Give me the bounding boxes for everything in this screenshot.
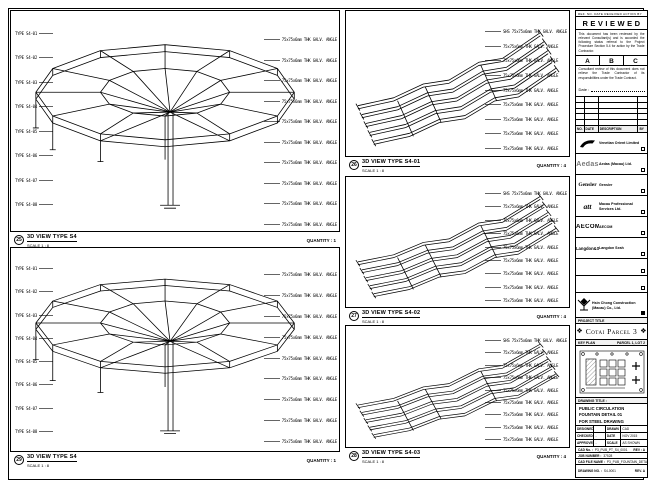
revision-header-cell: BY: [638, 126, 647, 132]
leader-line: [264, 399, 280, 400]
approvals-value: CAD: [621, 426, 647, 432]
annotation-label: 75x75x6mm THK GALV. ANGLE: [264, 397, 337, 402]
contractor-row: Hsin Chong Construction (Macau) Co., Ltd…: [576, 293, 647, 318]
quantity-note: QUANTITY : 4: [537, 314, 566, 319]
annotation-label: 75x75x6mm THK GALV. ANGLE: [264, 181, 337, 186]
leader-line: [485, 300, 501, 301]
contractor-name: Hsin Chong Construction (Macau) Co., Ltd…: [592, 301, 636, 310]
date-fill-line: [591, 88, 644, 92]
consultant-name: Macau Professional Services Ltd.: [599, 202, 633, 211]
leader-line: [264, 358, 280, 359]
att-logo: att: [576, 202, 599, 211]
annotation-label: 75x75x6mm THK GALV. ANGLE: [485, 298, 567, 303]
leader-line: [485, 207, 501, 208]
annotation-label: 75x75x6mm THK GALV. ANGLE: [485, 204, 567, 209]
aecom-logo: AECOM: [576, 224, 599, 230]
leader-line: [264, 337, 280, 338]
annotation-label: 75x75x6mm THK GALV. ANGLE: [485, 218, 567, 223]
leader-line: [39, 361, 53, 362]
annotation-label: 75x75x6mm THK GALV. ANGLE: [485, 412, 567, 417]
quantity-note: QUANTITY : 4: [537, 454, 566, 459]
consultant-row-macau-professional: att Macau Professional Services Ltd.: [576, 196, 647, 217]
annotation-label: 75x75x6mm THK GALV. ANGLE: [264, 314, 337, 319]
callout-number: 29: [16, 457, 22, 463]
annotation-label: 75x75x6mm THK GALV. ANGLE: [264, 272, 337, 277]
annotation-label: 75x75x6mm THK GALV. ANGLE: [485, 375, 567, 380]
annotation-label: 75x75x6mm THK GALV. ANGLE: [485, 44, 567, 49]
annotation-label: 75x75x6mm THK GALV. ANGLE: [485, 73, 567, 78]
viewport-3d-view-type-s4-b: TYPE S4-01TYPE S4-02TYPE S4-03TYPE S4-04…: [10, 247, 340, 452]
approvals-value: AS SHOWN: [621, 440, 647, 446]
leader-line: [39, 204, 53, 205]
leader-line: [485, 402, 501, 403]
revision-header-cell: DESCRIPTION: [599, 126, 639, 132]
drawing-number-row: DRAWING NO. : S4-0001 REV. A: [576, 465, 647, 477]
checkbox-icon: [641, 231, 645, 235]
review-grade: C: [624, 56, 647, 65]
leader-line: [264, 316, 280, 317]
leader-line: [264, 295, 280, 296]
consultant-row-gensler: Gensler Gensler: [576, 175, 647, 196]
annotation-label: TYPE S4-02: [15, 289, 53, 294]
leader-line: [264, 60, 280, 61]
annotation-label: 75x75x6mm THK GALV. ANGLE: [264, 140, 337, 145]
checkbox-icon: [641, 252, 645, 256]
annotation-label: TYPE S4-05: [15, 359, 53, 364]
annotation-label: 75x75x6mm THK GALV. ANGLE: [485, 131, 567, 136]
annotation-label: TYPE S4-06: [15, 382, 53, 387]
annotation-label: 75x75x6mm THK GALV. ANGLE: [485, 102, 567, 107]
quantity-note: QUANTITY : 1: [307, 238, 336, 243]
annotation-label: TYPE S4-08: [15, 429, 53, 434]
leader-line: [264, 379, 280, 380]
leader-line: [264, 162, 280, 163]
leader-line: [485, 260, 501, 261]
consultant-name: Langdon Seah: [599, 246, 624, 250]
leader-line: [485, 104, 501, 105]
annotation-label: 75x75x6mm THK GALV. ANGLE: [264, 37, 337, 42]
annotation-label: TYPE S4-06: [15, 153, 53, 158]
leader-line: [39, 180, 53, 181]
revision-table-header: NO.DATEDESCRIPTIONBY: [576, 126, 647, 132]
annotation-label: TYPE S4-07: [15, 178, 53, 183]
leader-line: [485, 90, 501, 91]
viewport-3d-view-type-s4: TYPE S4-01TYPE S4-02TYPE S4-03TYPE S4-04…: [10, 10, 340, 232]
annotation-label: 75x75x6mm THK GALV. ANGLE: [264, 335, 337, 340]
annotation-label: 75x75x6mm THK GALV. ANGLE: [485, 271, 567, 276]
annotation-label: TYPE S4-08: [15, 202, 53, 207]
callout-number: 28: [351, 453, 357, 459]
drawing-title-line: FOR STEEL DRAWING: [579, 419, 644, 425]
annotation-label: 75x75x6mm THK GALV. ANGLE: [264, 78, 337, 83]
annotation-label: 75x75x6mm THK GALV. ANGLE: [485, 425, 567, 430]
project-emblem-icon: ❖: [576, 328, 582, 335]
annotation-label: SHS 75x75x6mm THK GALV. ANGLE: [485, 191, 567, 196]
annotation-label: 75x75x6mm THK GALV. ANGLE: [485, 245, 567, 250]
approvals-row: DESIGNED DRAWN CAD: [576, 426, 647, 433]
annotation-label: 75x75x6mm THK GALV. ANGLE: [264, 58, 337, 63]
langdon-seah-logo: Langdon&Seah: [576, 246, 599, 251]
review-grade: B: [600, 56, 624, 65]
leader-line: [39, 385, 53, 386]
title-block: REF. NO. DATE RECEIVED ACTION BY REVIEWE…: [575, 10, 648, 478]
annotation-label: 75x75x6mm THK GALV. ANGLE: [264, 222, 337, 227]
detail-callout-circle: 28: [349, 451, 359, 461]
callout-number: 27: [351, 313, 357, 319]
annotation-label: 75x75x6mm THK GALV. ANGLE: [485, 363, 567, 368]
detail-callout-circle: 27: [349, 311, 359, 321]
review-stamp-text-2: Consultant review of this document does …: [576, 66, 647, 82]
annotation-label: 75x75x6mm THK GALV. ANGLE: [485, 285, 567, 290]
review-stamp: REVIEWED This document has been reviewed…: [576, 17, 647, 97]
annotation-column-right: SHS 75x75x6mm THK GALV. ANGLE75x75x6mm T…: [485, 338, 567, 442]
view-scale: SCALE 1 : 8: [362, 168, 420, 173]
leader-line: [485, 31, 501, 32]
annotation-column-left: TYPE S4-01TYPE S4-02TYPE S4-03TYPE S4-04…: [15, 266, 53, 434]
checkbox-icon: [641, 147, 645, 151]
annotation-label: TYPE S4-03: [15, 313, 53, 318]
leader-line: [264, 441, 280, 442]
viewport-3d-view-type-s4-03: SHS 75x75x6mm THK GALV. ANGLE75x75x6mm T…: [345, 325, 570, 448]
leader-line: [485, 119, 501, 120]
leader-line: [485, 220, 501, 221]
annotation-label: 75x75x6mm THK GALV. ANGLE: [485, 437, 567, 442]
review-grade-row: ABC: [576, 55, 647, 66]
leader-line: [39, 58, 53, 59]
checkbox-icon: [641, 286, 645, 290]
drawing-title-text: PUBLIC CIRCULATION FOUNTAIN DETAIL 01 FO…: [576, 404, 647, 426]
leader-line: [264, 204, 280, 205]
review-stamp-title: REVIEWED: [576, 17, 647, 30]
annotation-label: 75x75x6mm THK GALV. ANGLE: [485, 258, 567, 263]
band-label: DRAWING TITLE :: [578, 399, 607, 403]
leader-line: [264, 121, 280, 122]
view-title: 3D VIEW TYPE S4-02: [362, 310, 420, 318]
view-title: 3D VIEW TYPE S4-03: [362, 450, 420, 458]
viewport-title-bar: 25 3D VIEW TYPE S4 SCALE 1 : 8 QUANTITY …: [10, 233, 340, 247]
leader-line: [485, 353, 501, 354]
annotation-label: 75x75x6mm THK GALV. ANGLE: [485, 117, 567, 122]
annotation-label: TYPE S4-01: [15, 266, 53, 271]
leader-line: [485, 247, 501, 248]
checkbox-icon: [641, 189, 645, 193]
project-name: Cotai Parcel 3: [586, 327, 638, 336]
annotation-label: 75x75x6mm THK GALV. ANGLE: [485, 58, 567, 63]
approvals-label: CHECKED: [576, 433, 594, 439]
annotation-label: 75x75x6mm THK GALV. ANGLE: [264, 201, 337, 206]
leader-line: [264, 183, 280, 184]
viewport-3d-view-type-s4-02: SHS 75x75x6mm THK GALV. ANGLE75x75x6mm T…: [345, 176, 570, 308]
leader-line: [485, 75, 501, 76]
revision-letter: REV : A: [633, 448, 645, 452]
project-emblem-icon: ❖: [640, 328, 646, 335]
annotation-label: SHS 75x75x6mm THK GALV. ANGLE: [485, 29, 567, 34]
leader-line: [485, 273, 501, 274]
viewport-title-bar: 29 3D VIEW TYPE S4 SCALE 1 : 8 QUANTITY …: [10, 453, 340, 467]
gensler-logo: Gensler: [576, 182, 599, 188]
aedas-logo: Aedas: [576, 161, 599, 168]
consultant-row-aedas: Aedas Aedas (Macau) Ltd.: [576, 154, 647, 175]
leader-line: [485, 46, 501, 47]
approvals-label: DRAWN: [606, 426, 622, 432]
date-label: Date :: [579, 87, 590, 92]
leader-line: [39, 33, 53, 34]
annotation-label: TYPE S4-07: [15, 406, 53, 411]
leader-line: [264, 80, 280, 81]
annotation-label: 75x75x6mm THK GALV. ANGLE: [485, 146, 567, 151]
review-grade: A: [576, 56, 600, 65]
consultant-name: AECOM: [599, 225, 612, 229]
annotation-column-right: SHS 75x75x6mm THK GALV. ANGLE75x75x6mm T…: [485, 191, 567, 303]
annotation-label: TYPE S4-02: [15, 55, 53, 60]
consultant-name: Venetian Orient Limited: [599, 141, 639, 145]
leader-line: [485, 148, 501, 149]
review-stamp-text-1: This document has been reviewed by the r…: [576, 30, 647, 55]
leader-line: [39, 131, 53, 132]
project-name-row: ❖ Cotai Parcel 3 ❖: [576, 324, 647, 340]
leader-line: [264, 39, 280, 40]
leader-line: [39, 315, 53, 316]
annotation-label: TYPE S4-05: [15, 129, 53, 134]
view-scale: SCALE 1 : 8: [362, 459, 420, 464]
viewport-title-bar: 27 3D VIEW TYPE S4-02 SCALE 1 : 8 QUANTI…: [345, 309, 570, 323]
annotation-column-right: 75x75x6mm THK GALV. ANGLE75x75x6mm THK G…: [264, 37, 337, 227]
annotation-label: 75x75x6mm THK GALV. ANGLE: [264, 119, 337, 124]
hsin-chong-logo-icon: [576, 297, 592, 313]
annotation-label: TYPE S4-04: [15, 104, 53, 109]
approvals-row: APPROVED - SCALE AS SHOWN: [576, 440, 647, 446]
approvals-row: CHECKED - DATE NOV 2015: [576, 433, 647, 440]
checkbox-icon: [641, 210, 645, 214]
leader-line: [485, 340, 501, 341]
leader-line: [485, 414, 501, 415]
view-scale: SCALE 1 : 8: [27, 463, 77, 468]
leader-line: [485, 427, 501, 428]
consultant-name: Gensler: [599, 183, 612, 187]
annotation-label: TYPE S4-01: [15, 31, 53, 36]
consultant-row-venetian: Venetian Orient Limited: [576, 133, 647, 154]
approvals-label: DATE: [606, 433, 622, 439]
checkbox-icon: [641, 269, 645, 273]
leader-line: [485, 60, 501, 61]
quantity-note: QUANTITY : 4: [537, 163, 566, 168]
annotation-label: 75x75x6mm THK GALV. ANGLE: [485, 88, 567, 93]
band-label: PROJECT TITLE: [578, 319, 604, 323]
leader-line: [39, 338, 53, 339]
leader-line: [39, 155, 53, 156]
revision-header-cell: DATE: [585, 126, 599, 132]
annotation-label: 75x75x6mm THK GALV. ANGLE: [264, 293, 337, 298]
key-plan-drawing: [576, 346, 647, 398]
leader-line: [485, 439, 501, 440]
approvals-value: NOV 2015: [621, 433, 647, 439]
leader-line: [264, 420, 280, 421]
revision-letter: REV. A: [635, 469, 645, 473]
key-plan-parcel-label: PARCEL 1, LOT 2: [617, 341, 645, 345]
revision-table: NO.DATEDESCRIPTIONBY: [576, 97, 647, 133]
leader-line: [39, 268, 53, 269]
view-title: 3D VIEW TYPE S4: [27, 234, 77, 242]
annotation-label: TYPE S4-03: [15, 80, 53, 85]
detail-callout-circle: 25: [14, 235, 24, 245]
quantity-note: QUANTITY : 1: [307, 458, 336, 463]
leader-line: [485, 377, 501, 378]
leader-line: [39, 431, 53, 432]
review-date-row: Date :: [576, 82, 647, 94]
leader-line: [485, 365, 501, 366]
leader-line: [264, 101, 280, 102]
annotation-label: 75x75x6mm THK GALV. ANGLE: [264, 356, 337, 361]
annotation-label: 75x75x6mm THK GALV. ANGLE: [485, 350, 567, 355]
band-label: KEY PLAN: [578, 341, 595, 345]
leader-line: [485, 390, 501, 391]
approvals-label: SCALE: [606, 440, 622, 446]
view-scale: SCALE 1 : 8: [362, 319, 420, 324]
consultant-row-aecom: AECOM AECOM: [576, 217, 647, 238]
leader-line: [264, 274, 280, 275]
key-plan-map: [579, 348, 645, 396]
leader-line: [485, 134, 501, 135]
approvals-label: APPROVED: [576, 440, 594, 446]
consultant-name: Aedas (Macau) Ltd.: [599, 162, 632, 166]
annotation-label: SHS 75x75x6mm THK GALV. ANGLE: [485, 338, 567, 343]
consultant-row-empty: [576, 259, 647, 276]
annotation-label: 75x75x6mm THK GALV. ANGLE: [264, 439, 337, 444]
annotation-label: 75x75x6mm THK GALV. ANGLE: [264, 160, 337, 165]
annotation-label: TYPE S4-04: [15, 336, 53, 341]
view-title: 3D VIEW TYPE S4: [27, 454, 77, 462]
view-title: 3D VIEW TYPE S4-01: [362, 159, 420, 167]
callout-number: 26: [351, 162, 357, 168]
annotation-label: 75x75x6mm THK GALV. ANGLE: [485, 231, 567, 236]
checkbox-icon-filled: [641, 311, 645, 315]
venetian-logo-icon: [576, 138, 599, 148]
annotation-label: 75x75x6mm THK GALV. ANGLE: [264, 99, 337, 104]
leader-line: [39, 82, 53, 83]
viewport-title-bar: 28 3D VIEW TYPE S4-03 SCALE 1 : 8 QUANTI…: [345, 449, 570, 463]
leader-line: [39, 291, 53, 292]
revision-header-cell: NO.: [576, 126, 585, 132]
checkbox-icon: [641, 168, 645, 172]
leader-line: [39, 106, 53, 107]
leader-line: [264, 224, 280, 225]
annotation-label: 75x75x6mm THK GALV. ANGLE: [264, 376, 337, 381]
leader-line: [39, 408, 53, 409]
approvals-label: DESIGNED: [576, 426, 594, 432]
viewport-title-bar: 26 3D VIEW TYPE S4-01 SCALE 1 : 8 QUANTI…: [345, 158, 570, 172]
annotation-label: 75x75x6mm THK GALV. ANGLE: [485, 400, 567, 405]
detail-callout-circle: 29: [14, 455, 24, 465]
annotation-column-right: SHS 75x75x6mm THK GALV. ANGLE75x75x6mm T…: [485, 29, 567, 151]
annotation-label: 75x75x6mm THK GALV. ANGLE: [485, 388, 567, 393]
annotation-label: 75x75x6mm THK GALV. ANGLE: [264, 418, 337, 423]
annotation-column-right: 75x75x6mm THK GALV. ANGLE75x75x6mm THK G…: [264, 272, 337, 444]
approvals-table: DESIGNED DRAWN CAD CHECKED - DATE NOV 20…: [576, 426, 647, 447]
viewport-3d-view-type-s4-01: SHS 75x75x6mm THK GALV. ANGLE75x75x6mm T…: [345, 10, 570, 157]
annotation-column-left: TYPE S4-01TYPE S4-02TYPE S4-03TYPE S4-04…: [15, 31, 53, 207]
callout-number: 25: [16, 237, 22, 243]
consultant-row-empty: [576, 276, 647, 293]
consultant-row-langdon-seah: Langdon&Seah Langdon Seah: [576, 238, 647, 259]
detail-callout-circle: 26: [349, 160, 359, 170]
leader-line: [485, 193, 501, 194]
leader-line: [264, 142, 280, 143]
leader-line: [485, 233, 501, 234]
leader-line: [485, 287, 501, 288]
